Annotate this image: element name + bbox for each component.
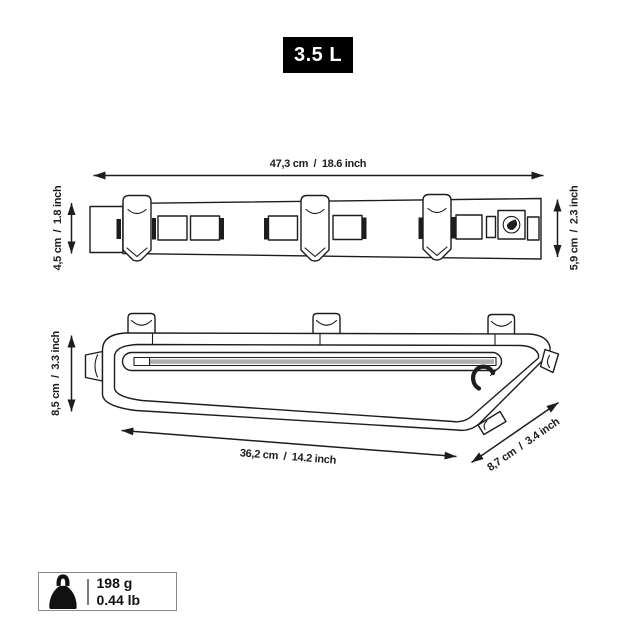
weight-imperial: 0.44 lb [97,592,141,608]
dimension-side-length: 36,2 cm / 14.2 inch [122,431,457,467]
dimension-label: 4,5 cm / 1.8 inch [52,185,64,270]
dimension-top-height-right: 5,9 cm / 2.3 inch [558,185,581,270]
right-end-loop [528,217,540,240]
dimension-label: 8,5 cm / 3.3 inch [50,331,62,416]
dimension-top-width: 47,3 cm / 18.6 inch [94,158,544,176]
frame-strap-tabs-side-view [128,314,515,334]
brand-logo-tab [498,211,525,240]
bag-body-side-view [103,333,551,430]
dimension-label: 47,3 cm / 18.6 inch [270,158,367,170]
top-view-drawing [90,195,541,262]
side-view-drawing [86,314,559,435]
weight-icon [47,572,79,612]
dimension-side-height: 8,5 cm / 3.3 inch [50,331,71,416]
zipper-coil [150,359,495,364]
weight-spec-box: 198 g 0.44 lb [38,572,177,611]
dimension-label: 36,2 cm / 14.2 inch [239,447,337,466]
dimension-top-height-left: 4,5 cm / 1.8 inch [52,185,71,270]
left-edge-tab [86,352,103,382]
dimension-label: 5,9 cm / 2.3 inch [569,185,581,270]
weight-metric: 198 g [97,575,141,591]
product-dimensions-diagram: 3.5 L [0,0,628,628]
weight-box-divider [87,579,89,605]
technical-drawing-svg: 47,3 cm / 18.6 inch 4,5 cm / 1.8 inch 5,… [0,0,628,628]
